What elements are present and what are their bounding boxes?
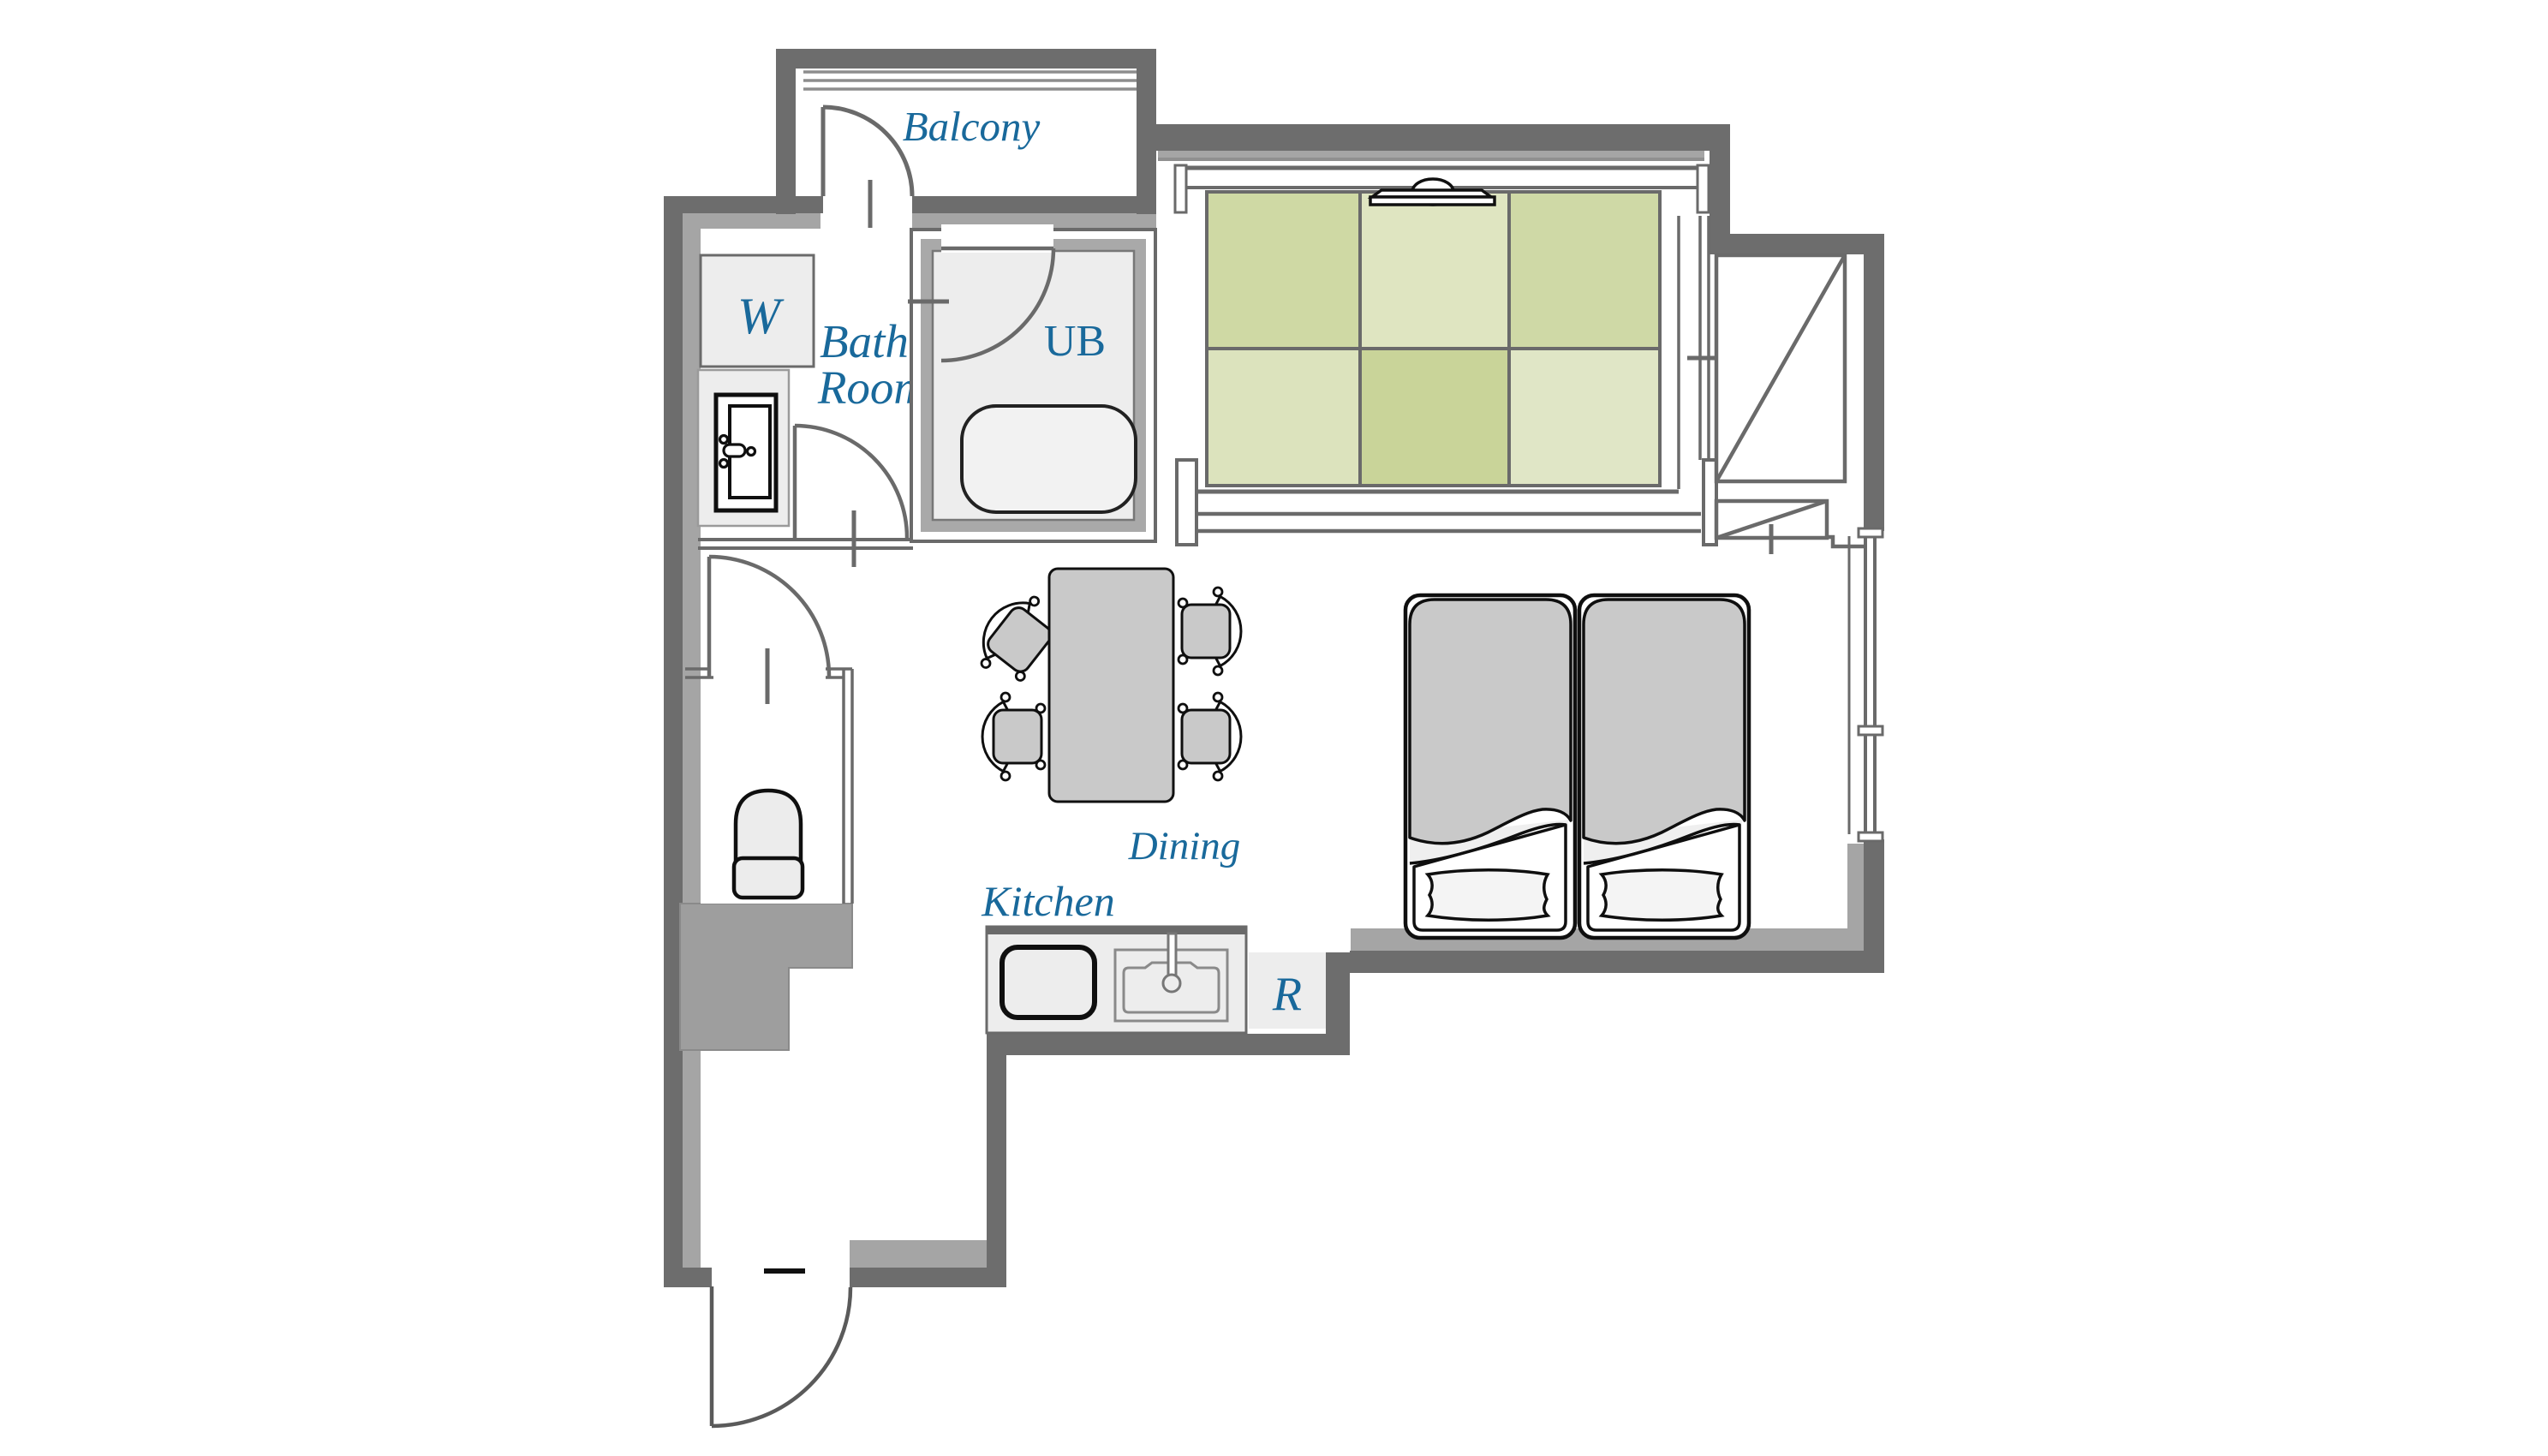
svg-text:Balcony: Balcony <box>903 103 1041 150</box>
svg-text:UB: UB <box>1044 317 1106 366</box>
svg-text:R: R <box>1272 968 1302 1021</box>
svg-text:Bath: Bath <box>820 315 909 367</box>
svg-text:Kitchen: Kitchen <box>981 877 1115 925</box>
svg-text:W: W <box>737 288 785 344</box>
svg-text:Dining: Dining <box>1128 824 1241 868</box>
